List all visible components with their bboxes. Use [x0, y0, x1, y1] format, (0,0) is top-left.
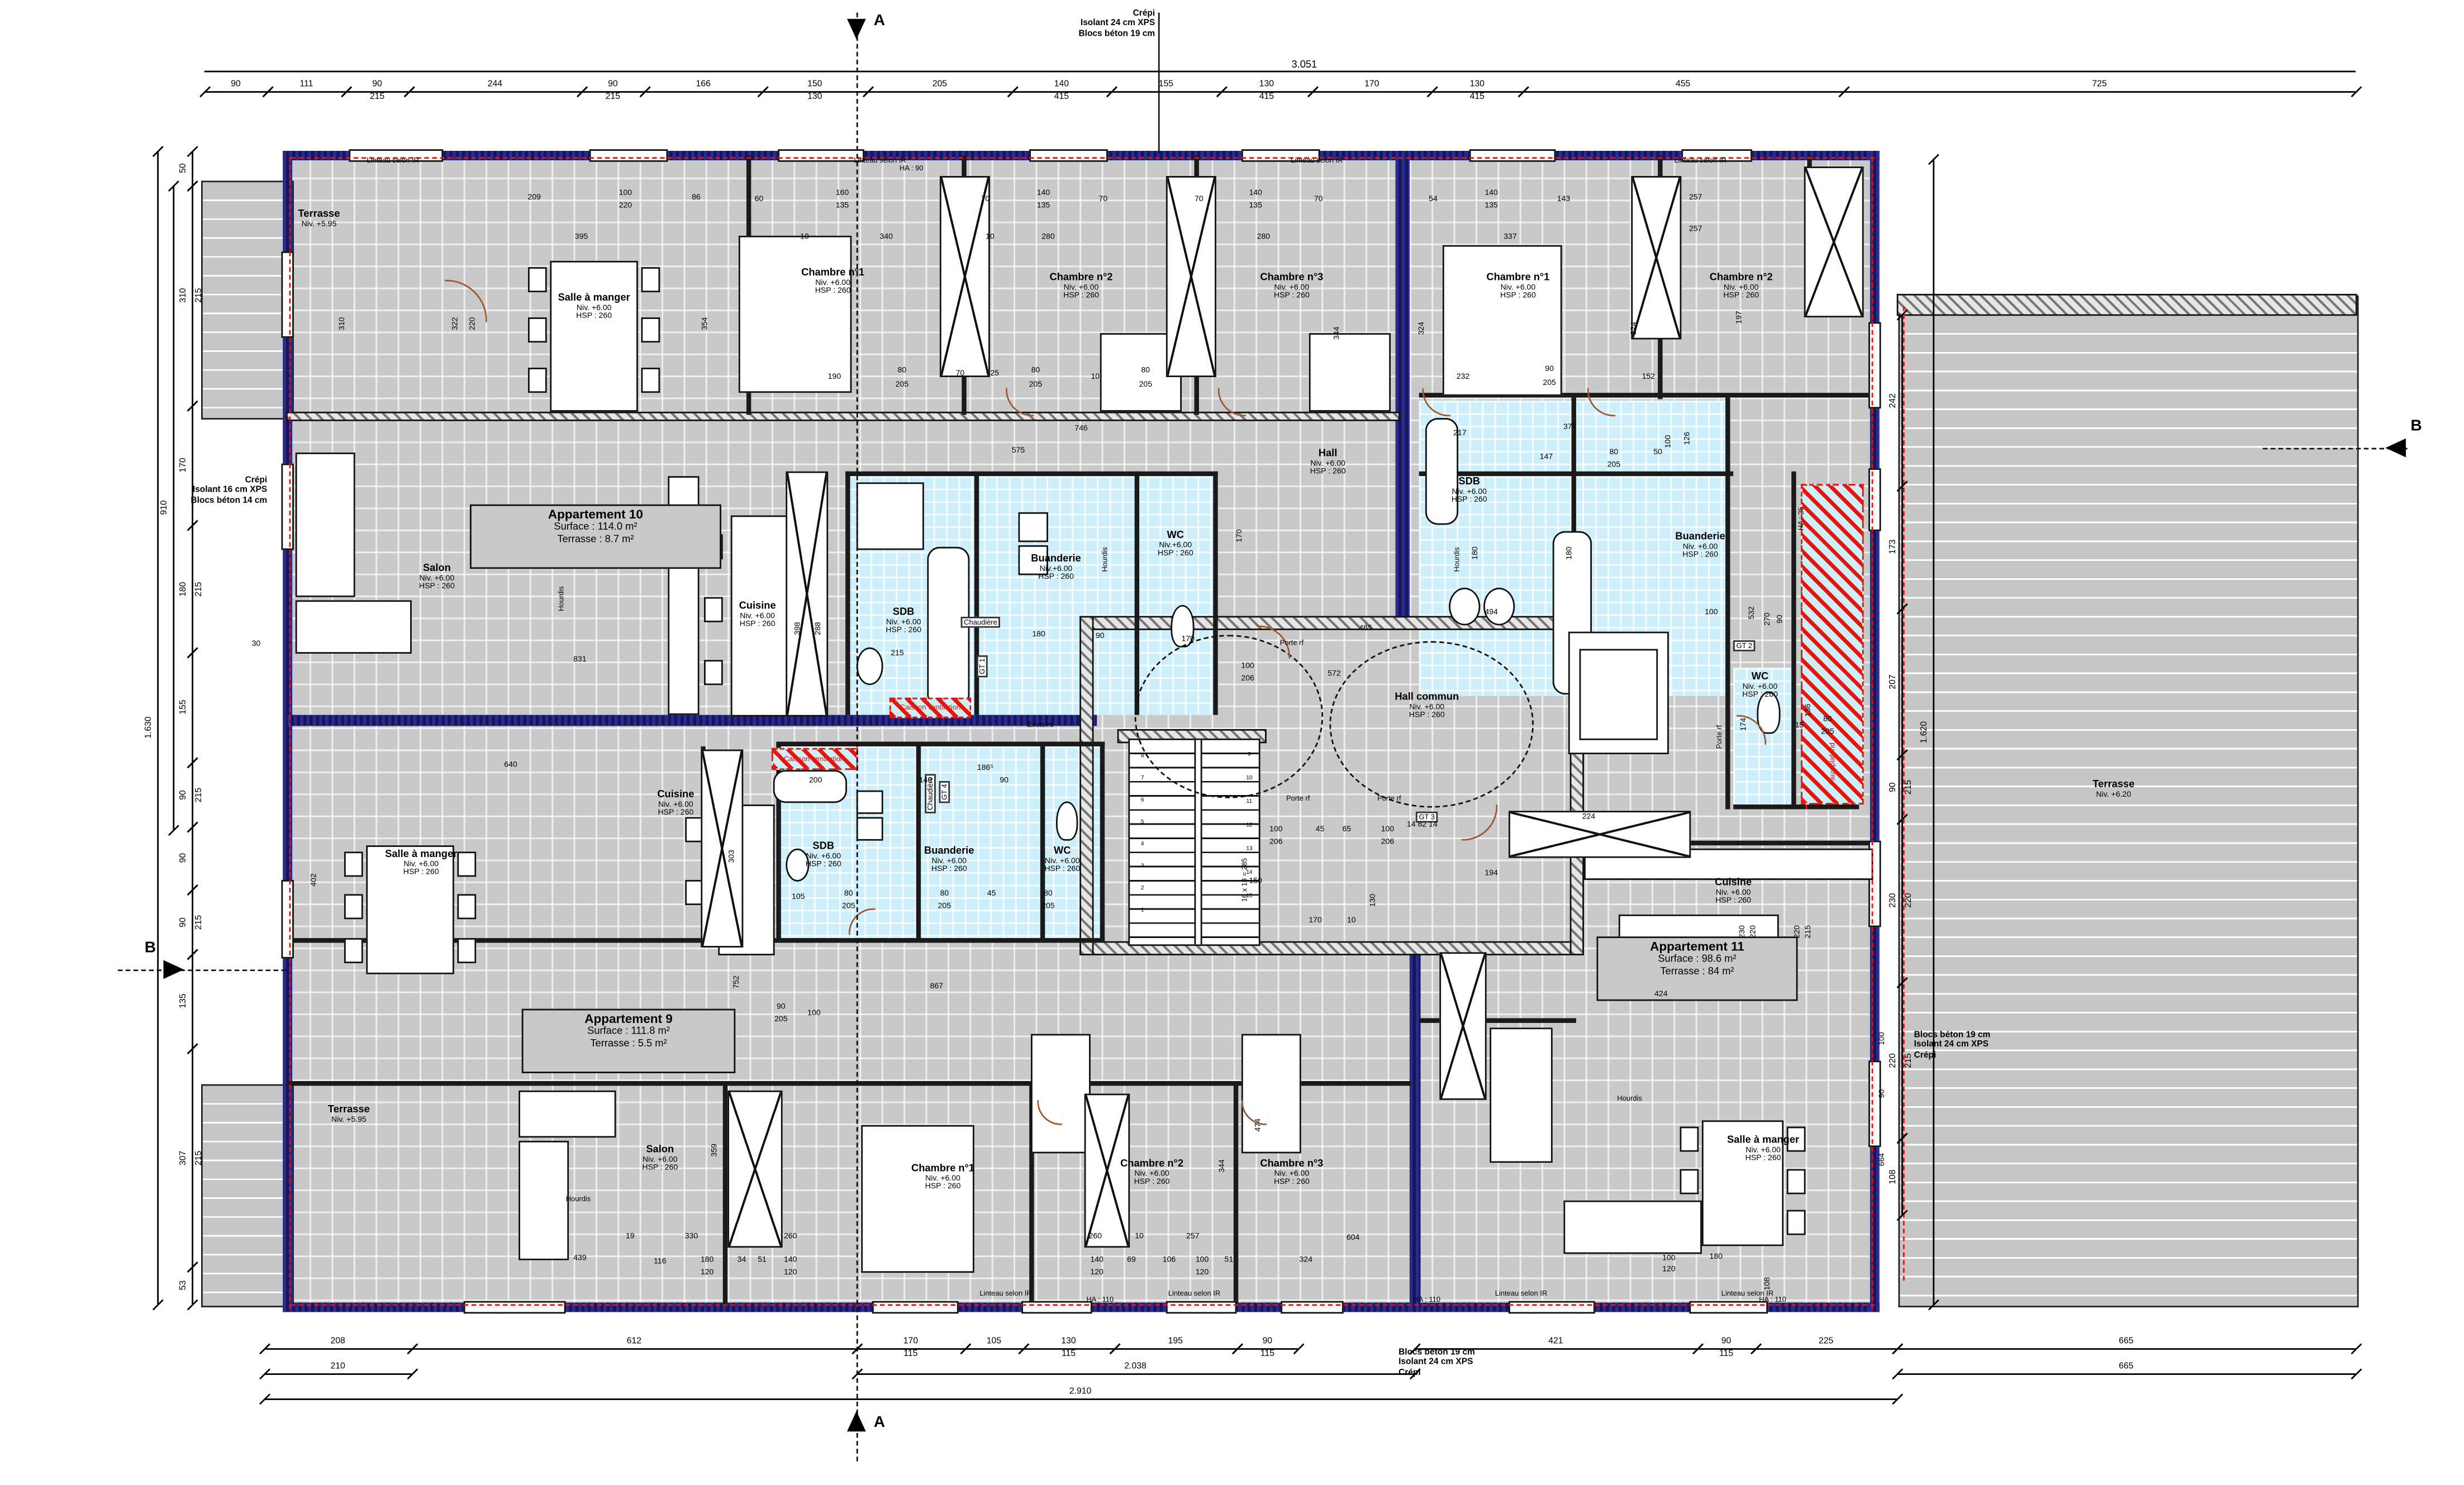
- dim-value-v: 910: [160, 500, 170, 515]
- plan-dim-label: 280: [1041, 232, 1054, 242]
- plan-dim-label: 209: [528, 193, 541, 203]
- window: [1509, 1301, 1595, 1314]
- dim-value-v: 155: [179, 699, 189, 714]
- dim-value: 90: [231, 80, 241, 89]
- sofa-icon: [1490, 1027, 1553, 1163]
- plan-dim-label: 215: [891, 649, 903, 659]
- dim-value-v: 207: [1889, 674, 1899, 688]
- dim-value: 455: [1676, 80, 1690, 89]
- axis-line: [291, 1304, 1875, 1306]
- tech-label-hourdis: Hourdis: [557, 584, 565, 612]
- chair-icon: [1787, 1169, 1806, 1194]
- plan-dim-label: 69: [1127, 1255, 1136, 1265]
- plan-dim-label: 120: [1196, 1268, 1209, 1278]
- plan-dim-label: 402: [310, 873, 319, 886]
- dim-value-v: 307: [179, 1150, 189, 1164]
- tech-label-linteau-selon-ir: Linteau selon IR: [852, 156, 907, 164]
- plan-dim-label: 324: [1630, 322, 1639, 335]
- dim-line: [965, 1348, 1023, 1350]
- core-wall: [1081, 617, 1092, 954]
- plan-dim-label: 474: [1254, 1118, 1263, 1131]
- room-label-hall-commun: Hall communNiv. +6.00HSP : 260: [1395, 693, 1459, 721]
- plan-dim-label: 140: [784, 1255, 797, 1265]
- dim-value-sub: 130: [807, 93, 822, 102]
- dim-value-v: 1.630: [145, 717, 154, 739]
- plan-dim-label: 70: [1314, 195, 1323, 204]
- dim-value-sub: 415: [1054, 93, 1069, 102]
- plan-dim-label: 120: [1090, 1268, 1103, 1278]
- stool-icon: [704, 597, 723, 622]
- room-label-wc: WCNiv. +6.00HSP : 260: [1044, 848, 1080, 875]
- tech-label-linteau-selon-ir: Linteau selon IR: [1289, 156, 1344, 164]
- floor-plan-canvas: 123456789101112131415 A A B B Crépi Isol…: [0, 0, 2464, 1485]
- sofa-icon: [519, 1141, 569, 1260]
- plan-dim-label: 746: [1074, 424, 1087, 434]
- plan-dim-label: 135: [1037, 201, 1050, 211]
- plan-dim-label: 205: [1607, 460, 1620, 470]
- apartment-10-infobox: Appartement 10 Surface : 114.0 m² Terras…: [470, 504, 721, 569]
- dim-value: 150: [807, 80, 822, 89]
- dim-value: 665: [2119, 1337, 2133, 1346]
- plan-dim-label: 344: [1333, 327, 1342, 340]
- dim-value-sub: 115: [1062, 1350, 1076, 1359]
- washer-icon: [1019, 512, 1048, 542]
- tech-label-caisson-ventilation: Caisson ventilation: [898, 703, 962, 711]
- tech-label-porte-rf: Porte rf: [1278, 639, 1305, 646]
- tech-label-linteau-selon-ir: Linteau selon IR: [1167, 1289, 1222, 1297]
- dim-value-v: 242: [1889, 393, 1899, 407]
- plan-dim-label: 194: [1485, 869, 1497, 878]
- room-label-chambre-n-2: Chambre n°2Niv. +6.00HSP : 260: [1710, 274, 1773, 301]
- plan-dim-label: 206: [1269, 837, 1282, 847]
- dim-line-v: [192, 826, 193, 889]
- window: [1166, 1301, 1237, 1314]
- plan-dim-label: 10: [986, 232, 995, 242]
- plan-dim-label: 230: [1738, 925, 1748, 938]
- axis-line: [289, 157, 291, 1309]
- plan-dim-label: 90: [1776, 615, 1785, 623]
- tech-label-linteau-selon-ir: Linteau selon IR: [365, 156, 421, 164]
- dim-value-v: 50: [179, 163, 189, 173]
- tech-label-16-x-18-285: 16 x 18 = 285: [1240, 856, 1248, 903]
- sink-icon: [857, 648, 883, 686]
- chair-icon: [528, 368, 547, 393]
- dim-line: [1111, 91, 1221, 93]
- wardrobe-icon: [1509, 811, 1691, 858]
- apartment-9-infobox: Appartement 9 Surface : 111.8 m² Terrass…: [522, 1009, 736, 1073]
- window: [1868, 1060, 1881, 1147]
- plan-dim-label: 310: [338, 317, 348, 330]
- plan-dim-label: 831: [573, 655, 586, 665]
- plan-dim-label: 197: [1735, 311, 1744, 323]
- dim-line-v: [173, 185, 174, 830]
- tech-label-linteau-selon-ir: Linteau selon IR: [1493, 1289, 1549, 1297]
- tech-label-exutoire: Exutoire: [1025, 721, 1055, 729]
- interior-wall: [776, 742, 1105, 746]
- dim-value-v: 1.620: [1920, 721, 1930, 742]
- plan-dim-label: 108: [1763, 1277, 1773, 1290]
- plan-dim-label: 100: [1241, 661, 1254, 671]
- bed-icon: [1309, 333, 1391, 412]
- chair-icon: [344, 894, 363, 920]
- wardrobe-icon: [940, 176, 990, 377]
- plan-dim-label: 120: [784, 1268, 797, 1278]
- window: [1469, 149, 1556, 162]
- dim-value-v: 53: [179, 1281, 189, 1291]
- dim-value: 170: [903, 1337, 918, 1346]
- interior-wall: [1040, 742, 1044, 943]
- dim-line: [267, 91, 346, 93]
- plan-dim-label: 190: [828, 373, 841, 382]
- room-label-chambre-n-3: Chambre n°3Niv. +6.00HSP : 260: [1260, 1160, 1323, 1188]
- window: [778, 149, 864, 162]
- plan-dim-label: 70: [1195, 195, 1204, 204]
- plan-dim-label: 51: [1225, 1255, 1234, 1265]
- plan-dim-label: 260: [784, 1232, 797, 1241]
- wardrobe-icon: [1166, 176, 1216, 377]
- chair-icon: [457, 894, 476, 920]
- dim-line-v: [192, 151, 193, 185]
- section-line-b-left: [118, 969, 286, 971]
- dim-value: 2.038: [1124, 1362, 1146, 1372]
- tech-label-hourdis: Hourdis: [1453, 545, 1461, 573]
- section-label-a-top: A: [874, 13, 885, 30]
- dim-value: 90: [1263, 1337, 1273, 1346]
- dim-value: 130: [1259, 80, 1274, 89]
- plan-dim-label: 217: [1453, 429, 1466, 439]
- tech-label-porte-rf: Porte rf: [1715, 724, 1723, 750]
- dim-line: [1114, 1348, 1236, 1350]
- plan-dim-label: 604: [1347, 1234, 1359, 1243]
- tech-label-gt-4: GT 4: [939, 781, 950, 803]
- plan-dim-label: 140: [1485, 189, 1497, 198]
- plan-dim-label: 10: [1091, 373, 1100, 382]
- dim-value: 665: [2119, 1362, 2133, 1372]
- window: [281, 880, 294, 959]
- plan-dim-label: 280: [1257, 232, 1270, 242]
- window: [1868, 468, 1881, 531]
- room-label-wc: WCNiv.+6.00HSP : 260: [1158, 532, 1193, 559]
- dim-value-v: 230: [1889, 893, 1899, 907]
- plan-dim-label: 120: [1662, 1265, 1675, 1274]
- plan-dim-label: 60: [755, 195, 764, 204]
- dim-value: 105: [987, 1337, 1001, 1346]
- dim-line-v: [192, 889, 193, 954]
- plan-dim-label: 51: [758, 1255, 767, 1265]
- interior-wall: [845, 472, 849, 715]
- window: [281, 464, 294, 550]
- tech-label-chaudi-re: Chaudière: [961, 617, 1001, 628]
- room-label-wc: WCNiv. +6.00HSP : 260: [1742, 673, 1778, 701]
- plan-dim-label: 80: [898, 366, 907, 375]
- plan-dim-label: 752: [732, 975, 742, 988]
- plan-dim-label: 140: [1090, 1255, 1103, 1265]
- elevator: [1568, 632, 1669, 754]
- tech-label-ha-25: HA : 25: [1797, 505, 1805, 532]
- tech-label-linteau-selon-ir: Linteau selon IR: [978, 1289, 1033, 1297]
- wardrobe-icon: [1804, 166, 1864, 317]
- room-label-buanderie: BuanderieNiv.+6.00HSP : 260: [1031, 555, 1081, 583]
- plan-dim-label: 86: [692, 193, 701, 203]
- plan-dim-label: 303: [727, 850, 737, 863]
- section-marker-b-right-icon: [2385, 439, 2406, 458]
- dim-line-v: [192, 762, 193, 826]
- room-label-salle-manger: Salle à mangerNiv. +6.00HSP : 260: [375, 851, 467, 878]
- dim-value-sub: 415: [1259, 93, 1274, 102]
- dim-value-sub: 115: [1719, 1350, 1733, 1359]
- sofa-icon: [1563, 1201, 1702, 1254]
- plan-dim-label: 30: [252, 640, 261, 649]
- dim-value-v-sub: 215: [195, 914, 204, 929]
- tech-label-ha-90: HA : 90: [898, 164, 925, 172]
- section-marker-b-left-icon: [164, 960, 184, 979]
- plan-dim-label: 140: [1249, 189, 1262, 198]
- dim-value-v: 90: [1889, 782, 1899, 792]
- interior-wall: [974, 472, 978, 715]
- stair-step-number: 8: [1141, 753, 1144, 759]
- dim-line: [408, 91, 581, 93]
- room-label-salon: SalonNiv. +6.00HSP : 260: [642, 1146, 678, 1173]
- plan-dim-label: 337: [1504, 232, 1516, 242]
- plan-dim-label: 90: [1878, 1089, 1887, 1098]
- plan-dim-label: 640: [504, 760, 517, 770]
- plan-dim-label: 70: [981, 195, 990, 204]
- plan-dim-label: 10: [800, 232, 809, 242]
- plan-dim-label: 206: [1241, 674, 1254, 684]
- plan-dim-label: 45: [987, 889, 996, 899]
- plan-dim-label: 206: [1381, 837, 1394, 847]
- sofa-icon: [296, 600, 412, 654]
- exterior-wall: [1410, 951, 1421, 1312]
- chair-icon: [641, 317, 660, 342]
- section-marker-a-bottom-icon: [847, 1411, 866, 1432]
- plan-dim-label: 90: [1545, 365, 1554, 374]
- dim-value-sub: 215: [370, 93, 384, 102]
- dim-line-v: [157, 151, 159, 1304]
- plan-dim-label: 205: [1821, 727, 1834, 737]
- interior-wall: [1725, 398, 1729, 810]
- plan-dim-label: 140: [919, 776, 932, 786]
- plan-dim-label: 867: [930, 982, 943, 992]
- plan-dim-label: 180: [1032, 630, 1045, 640]
- bed-icon: [739, 236, 852, 393]
- dim-value: 166: [696, 80, 710, 89]
- dim-line-v: [1901, 608, 1903, 754]
- chair-icon: [641, 267, 660, 292]
- plan-dim-label: 205: [1139, 380, 1152, 390]
- dim-line: [1843, 91, 2356, 93]
- dim-value-v: 220: [1889, 1053, 1899, 1067]
- interior-wall: [723, 1081, 727, 1306]
- plan-dim-label: 398: [793, 622, 803, 635]
- sink-icon: [1449, 588, 1480, 626]
- plan-dim-label: 257: [1689, 193, 1702, 203]
- sofa-icon: [519, 1091, 616, 1137]
- chair-icon: [344, 937, 363, 963]
- plan-dim-label: 170: [1182, 635, 1195, 644]
- plan-dim-label: 136: [1804, 704, 1814, 717]
- stair-step-number: 4: [1141, 841, 1144, 847]
- dim-line-v: [192, 1048, 193, 1267]
- plan-dim-label: 80: [1044, 889, 1053, 899]
- plan-dim-label: 130: [1369, 894, 1378, 907]
- plan-dim-label: 152: [1642, 373, 1655, 382]
- chair-icon: [641, 368, 660, 393]
- wardrobe-icon: [1439, 952, 1486, 1100]
- dim-line: [1756, 1348, 1897, 1350]
- dim-line-v: [1901, 315, 1903, 486]
- plan-dim-label: 424: [1654, 990, 1667, 999]
- plan-dim-label: 220: [1749, 925, 1758, 938]
- dim-value: 205: [933, 80, 947, 89]
- dim-value-v: 173: [1889, 540, 1899, 554]
- plan-dim-label: 65: [1342, 825, 1351, 835]
- plan-dim-label: 147: [1540, 453, 1553, 462]
- plan-dim-label: 34: [738, 1255, 746, 1265]
- plan-dim-label: 80: [1031, 366, 1040, 375]
- room-label-chambre-n-2: Chambre n°2Niv. +6.00HSP : 260: [1050, 274, 1113, 301]
- plan-dim-label: 288: [814, 622, 824, 635]
- plan-dim-label: 100: [1381, 825, 1394, 835]
- plan-dim-label: 377: [1563, 423, 1576, 432]
- stair-step-number: 6: [1141, 797, 1144, 803]
- dim-value-v: 170: [179, 458, 189, 472]
- room-label-terrasse: TerrasseNiv. +6.20: [2092, 781, 2134, 800]
- stair-step-number: 5: [1141, 818, 1144, 825]
- dim-line-v: [1901, 818, 1903, 982]
- plan-dim-label: 224: [1582, 812, 1595, 822]
- plan-dim-label: 205: [1543, 379, 1556, 388]
- plan-dim-label: 180: [1565, 546, 1575, 559]
- plan-dim-label: 395: [575, 232, 588, 242]
- dim-value: 208: [331, 1337, 345, 1346]
- dim-line: [1897, 1348, 2356, 1350]
- interior-wall: [1791, 472, 1795, 810]
- plan-dim-label: 14 82 14: [1407, 820, 1438, 830]
- plan-dim-label: 340: [880, 232, 893, 242]
- room-label-chambre-n-1: Chambre n°1Niv. +6.00HSP : 260: [911, 1165, 974, 1192]
- dim-line-v: [192, 185, 193, 406]
- exterior-wall: [288, 715, 1097, 726]
- dim-line: [1523, 91, 1843, 93]
- section-line-a: [857, 13, 858, 1462]
- section-label-a-bottom: A: [874, 1414, 885, 1431]
- dim-value-sub: 215: [606, 93, 620, 102]
- axis-line: [291, 157, 1875, 159]
- axis-line: [1872, 157, 1873, 1309]
- terrace-right-wall: [1899, 296, 2356, 315]
- dim-value: 421: [1548, 1337, 1563, 1346]
- dim-value-v-sub: 215: [195, 1150, 204, 1164]
- dim-value: 90: [372, 80, 382, 89]
- dim-line: [1414, 1348, 1697, 1350]
- section-label-b-right: B: [2410, 418, 2422, 435]
- bed-icon: [1241, 1034, 1301, 1154]
- shower-icon: [857, 482, 924, 550]
- room-label-chambre-n-3: Chambre n°3Niv. +6.00HSP : 260: [1260, 274, 1323, 301]
- stair-step-number: 11: [1247, 798, 1253, 805]
- plan-dim-label: 100: [619, 189, 632, 198]
- plan-dim-label: 232: [1457, 373, 1469, 382]
- dim-value: 725: [2092, 80, 2106, 89]
- plan-dim-label: 205: [896, 380, 908, 390]
- bathtub-icon: [773, 770, 847, 803]
- dim-total-line: [204, 71, 2356, 73]
- dim-line: [857, 1373, 1414, 1375]
- plan-dim-label: 80: [844, 889, 853, 899]
- plan-dim-label: 19: [626, 1232, 635, 1241]
- plan-dim-label: 330: [685, 1232, 698, 1241]
- room-label-terrasse: TerrasseNiv. +5.95: [298, 211, 340, 230]
- dim-line-v: [1901, 982, 1903, 1137]
- room-label-buanderie: BuanderieNiv. +6.00HSP : 260: [1675, 533, 1725, 560]
- plan-dim-label: 322: [451, 317, 460, 330]
- plan-dim-label: 50: [1653, 448, 1662, 458]
- interior-wall: [845, 472, 1218, 475]
- plan-dim-label: 135: [1249, 201, 1262, 211]
- dim-line: [412, 1348, 857, 1350]
- chair-icon: [528, 267, 547, 292]
- tech-label-porte-rf: Porte rf: [1285, 794, 1311, 802]
- plan-dim-label: 439: [573, 1254, 586, 1263]
- tech-label-linteau-selon-ir: Linteau selon IR: [1673, 156, 1728, 164]
- plan-dim-label: 143: [1557, 195, 1570, 204]
- dim-line: [264, 1348, 412, 1350]
- interior-wall: [1100, 742, 1104, 943]
- tech-label-porte-rf: Porte rf: [1376, 794, 1402, 802]
- dim-line: [1897, 1373, 2356, 1375]
- dim-value: 111: [299, 80, 313, 89]
- plan-dim-label: 220: [1793, 925, 1802, 938]
- chair-icon: [344, 851, 363, 877]
- plan-dim-label: 215: [1804, 925, 1814, 938]
- tech-label-faux-plafond: Faux-plafond: [1828, 741, 1836, 786]
- dim-value: 210: [331, 1362, 345, 1372]
- tech-label-gt-2: GT 2: [1733, 640, 1756, 651]
- chair-icon: [1680, 1169, 1699, 1194]
- window: [1868, 322, 1881, 409]
- room-label-terrasse: TerrasseNiv. +5.95: [328, 1106, 370, 1125]
- exterior-wall: [1396, 151, 1410, 625]
- dim-line-v: [192, 954, 193, 1048]
- tech-label-hourdis: Hourdis: [564, 1195, 592, 1203]
- terrace-bottom-left: [201, 1084, 294, 1307]
- plan-dim-label: 344: [1218, 1159, 1228, 1172]
- dim-value-v: 135: [179, 993, 189, 1008]
- plan-dim-label: 186⁵: [977, 764, 993, 773]
- section-marker-a-top-icon: [847, 19, 866, 40]
- dim-line-v: [1901, 1137, 1903, 1215]
- plan-dim-label: 205: [938, 902, 951, 911]
- chair-icon: [1680, 1127, 1699, 1152]
- window: [1281, 1301, 1344, 1314]
- tech-label-ha-110: HA : 110: [1757, 1296, 1787, 1303]
- plan-dim-label: 100: [1878, 1032, 1887, 1045]
- plan-dim-label: 205: [842, 902, 855, 911]
- dim-value-v: 108: [1889, 1169, 1899, 1183]
- dim-value-v-sub: 215: [195, 288, 204, 303]
- plan-dim-label: 180: [1471, 546, 1481, 559]
- terrace-top-left: [201, 180, 294, 420]
- dim-line: [204, 91, 268, 93]
- dim-line-v: [192, 652, 193, 762]
- core-wall: [288, 413, 1399, 420]
- tech-label-hourdis: Hourdis: [1101, 545, 1109, 573]
- dim-line: [264, 1373, 412, 1375]
- plan-dim-label: 260: [1089, 1232, 1102, 1241]
- sink-icon: [1483, 588, 1515, 626]
- dim-value-v: 310: [179, 288, 189, 303]
